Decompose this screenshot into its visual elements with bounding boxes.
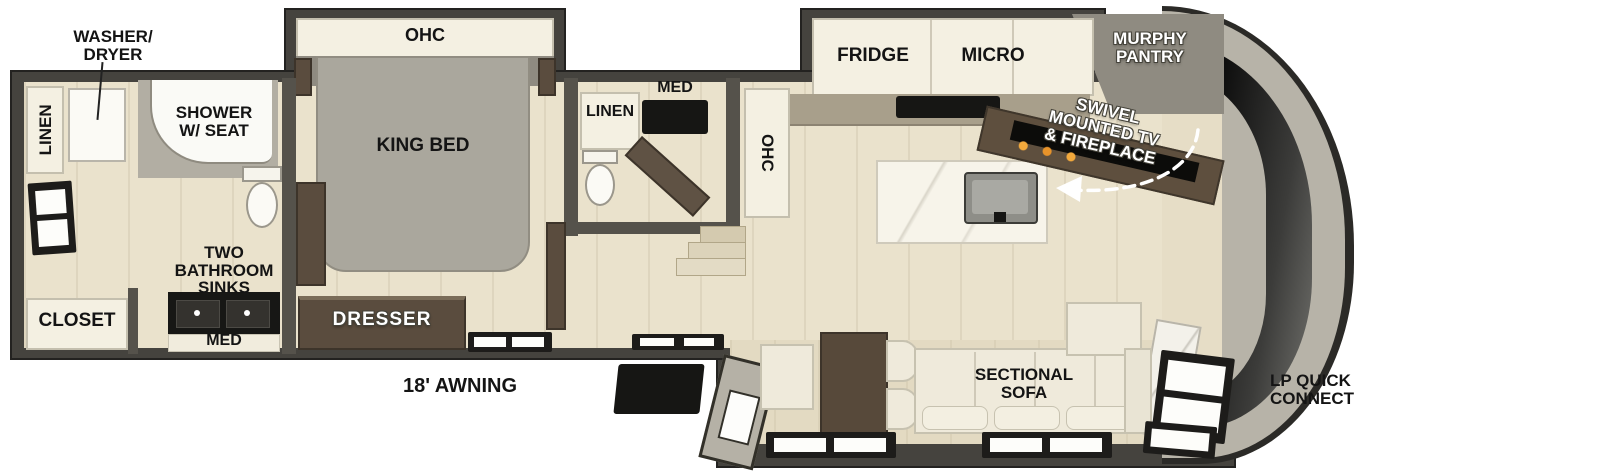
sectional-sofa-label: SECTIONAL SOFA bbox=[952, 366, 1096, 401]
rear-toilet-bowl bbox=[246, 182, 278, 228]
mid-med-label: MED bbox=[644, 80, 706, 97]
kitchen-ohc-label: OHC bbox=[758, 118, 776, 188]
mid-med-cabinet bbox=[642, 100, 708, 134]
wall-bedroom-midbath bbox=[564, 78, 578, 236]
rv-floorplan: WASHER/ DRYER LINEN SHOWER W/ SEAT TWO B… bbox=[0, 0, 1600, 474]
rear-toilet-tank bbox=[242, 166, 282, 182]
nightstand-right bbox=[538, 58, 556, 96]
king-bed bbox=[316, 56, 530, 272]
rear-linen-label: LINEN bbox=[37, 90, 55, 170]
entry-wall-window bbox=[632, 334, 724, 350]
bedroom-window bbox=[468, 332, 552, 352]
murphy-pantry-label: MURPHY PANTRY bbox=[1096, 30, 1204, 66]
shower-label: SHOWER W/ SEAT bbox=[158, 104, 270, 139]
wall-bath-bedroom bbox=[282, 78, 296, 354]
lp-quick-connect-label: LP QUICK CONNECT bbox=[1270, 372, 1380, 407]
washer-dryer-unit bbox=[68, 88, 126, 162]
awning-label: 18' AWNING bbox=[398, 376, 522, 397]
mid-toilet-tank bbox=[582, 150, 618, 164]
wall-closet-divider bbox=[128, 288, 138, 354]
slide-window-2 bbox=[982, 432, 1112, 458]
fridge-label: FRIDGE bbox=[818, 46, 928, 66]
bath-sinks-label: TWO BATHROOM SINKS bbox=[164, 244, 284, 297]
entry-steps bbox=[613, 364, 704, 414]
bath-sink-counter bbox=[168, 292, 280, 334]
wall-midbath-right bbox=[726, 78, 740, 234]
slide-window-1 bbox=[766, 432, 896, 458]
slide-window-3 bbox=[1143, 421, 1218, 459]
stairs-step-3 bbox=[676, 258, 746, 276]
side-seat bbox=[760, 344, 814, 410]
bedroom-wardrobe-right bbox=[546, 222, 566, 330]
mid-linen-label: LINEN bbox=[580, 104, 640, 121]
mid-linen-cabinet bbox=[580, 92, 640, 150]
nightstand-left bbox=[294, 58, 312, 96]
dresser-label: DRESSER bbox=[298, 310, 466, 330]
bath-med-label: MED bbox=[168, 333, 280, 350]
bedroom-ohc-label: OHC bbox=[296, 26, 554, 45]
rear-wall-window bbox=[28, 181, 77, 256]
micro-label: MICRO bbox=[938, 46, 1048, 66]
king-bed-label: KING BED bbox=[326, 136, 520, 156]
dinette-table bbox=[820, 332, 888, 434]
bedroom-wardrobe-left bbox=[296, 182, 326, 286]
closet-label: CLOSET bbox=[26, 311, 128, 331]
mid-toilet-bowl bbox=[585, 164, 615, 206]
washer-dryer-label: WASHER/ DRYER bbox=[48, 28, 178, 63]
